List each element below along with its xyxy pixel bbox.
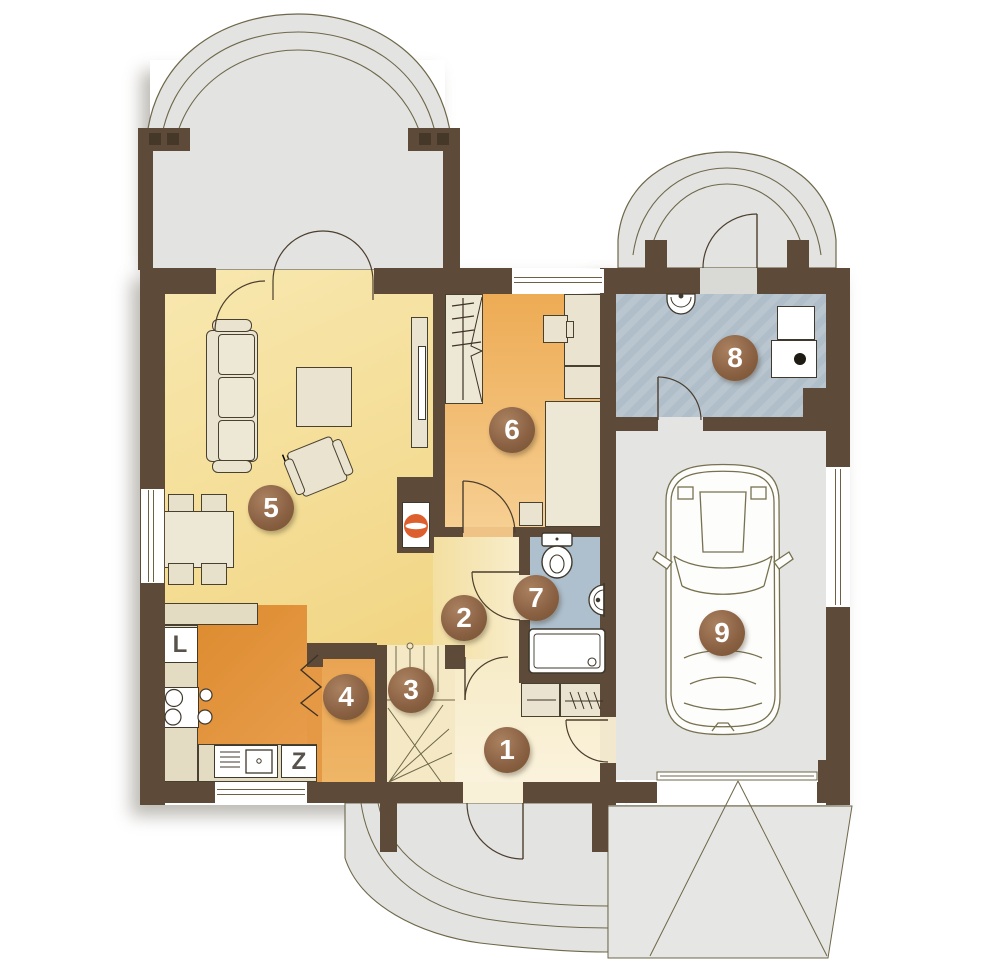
room-number: 6 [504,414,520,446]
sink-details [220,750,272,773]
room-number: 7 [528,582,544,614]
car [653,465,793,735]
closet-rail [527,692,603,709]
front-door-swing [467,803,523,859]
cooktop-burners [165,689,212,725]
room-marker-2: 2 [441,595,487,641]
room-marker-5: 5 [248,485,294,531]
utility-entry-swing [703,214,757,268]
fireplace-fire [404,514,428,538]
terrace-door-swing [215,281,265,331]
room-marker-1: 1 [484,727,530,773]
room-number: 5 [263,492,279,524]
garage-door-swing [566,720,608,762]
room-number: 9 [714,617,730,649]
room-marker-3: 3 [388,667,434,713]
detail-layer [0,0,1000,969]
room-marker-4: 4 [323,674,369,720]
room-number: 2 [456,602,472,634]
room-marker-6: 6 [489,407,535,453]
toilet [542,533,572,578]
wardrobe-rail [452,297,482,402]
room-marker-9: 9 [699,610,745,656]
room-marker-7: 7 [513,575,559,621]
stairs-newel [407,643,413,649]
room-number: 3 [403,674,419,706]
room-number: 8 [727,342,743,374]
terrace-door-swing [273,231,373,281]
hall-door-swing [465,657,508,700]
washbasin [589,583,604,617]
boiler-dot [794,353,806,365]
room-number: 4 [338,681,354,713]
bedroom-door-swing [463,481,515,533]
floor-plan: Img L Z [0,0,1000,969]
garage-sectional-door [657,772,817,780]
shower-tray [529,629,605,673]
utility-basin [667,294,695,314]
kitchen-opening-zigzag [301,655,321,716]
utility-door-swing [658,377,701,420]
room-marker-8: 8 [712,335,758,381]
room-number: 1 [499,734,515,766]
terrace-door-leaf [273,281,373,300]
stairs [387,643,455,782]
